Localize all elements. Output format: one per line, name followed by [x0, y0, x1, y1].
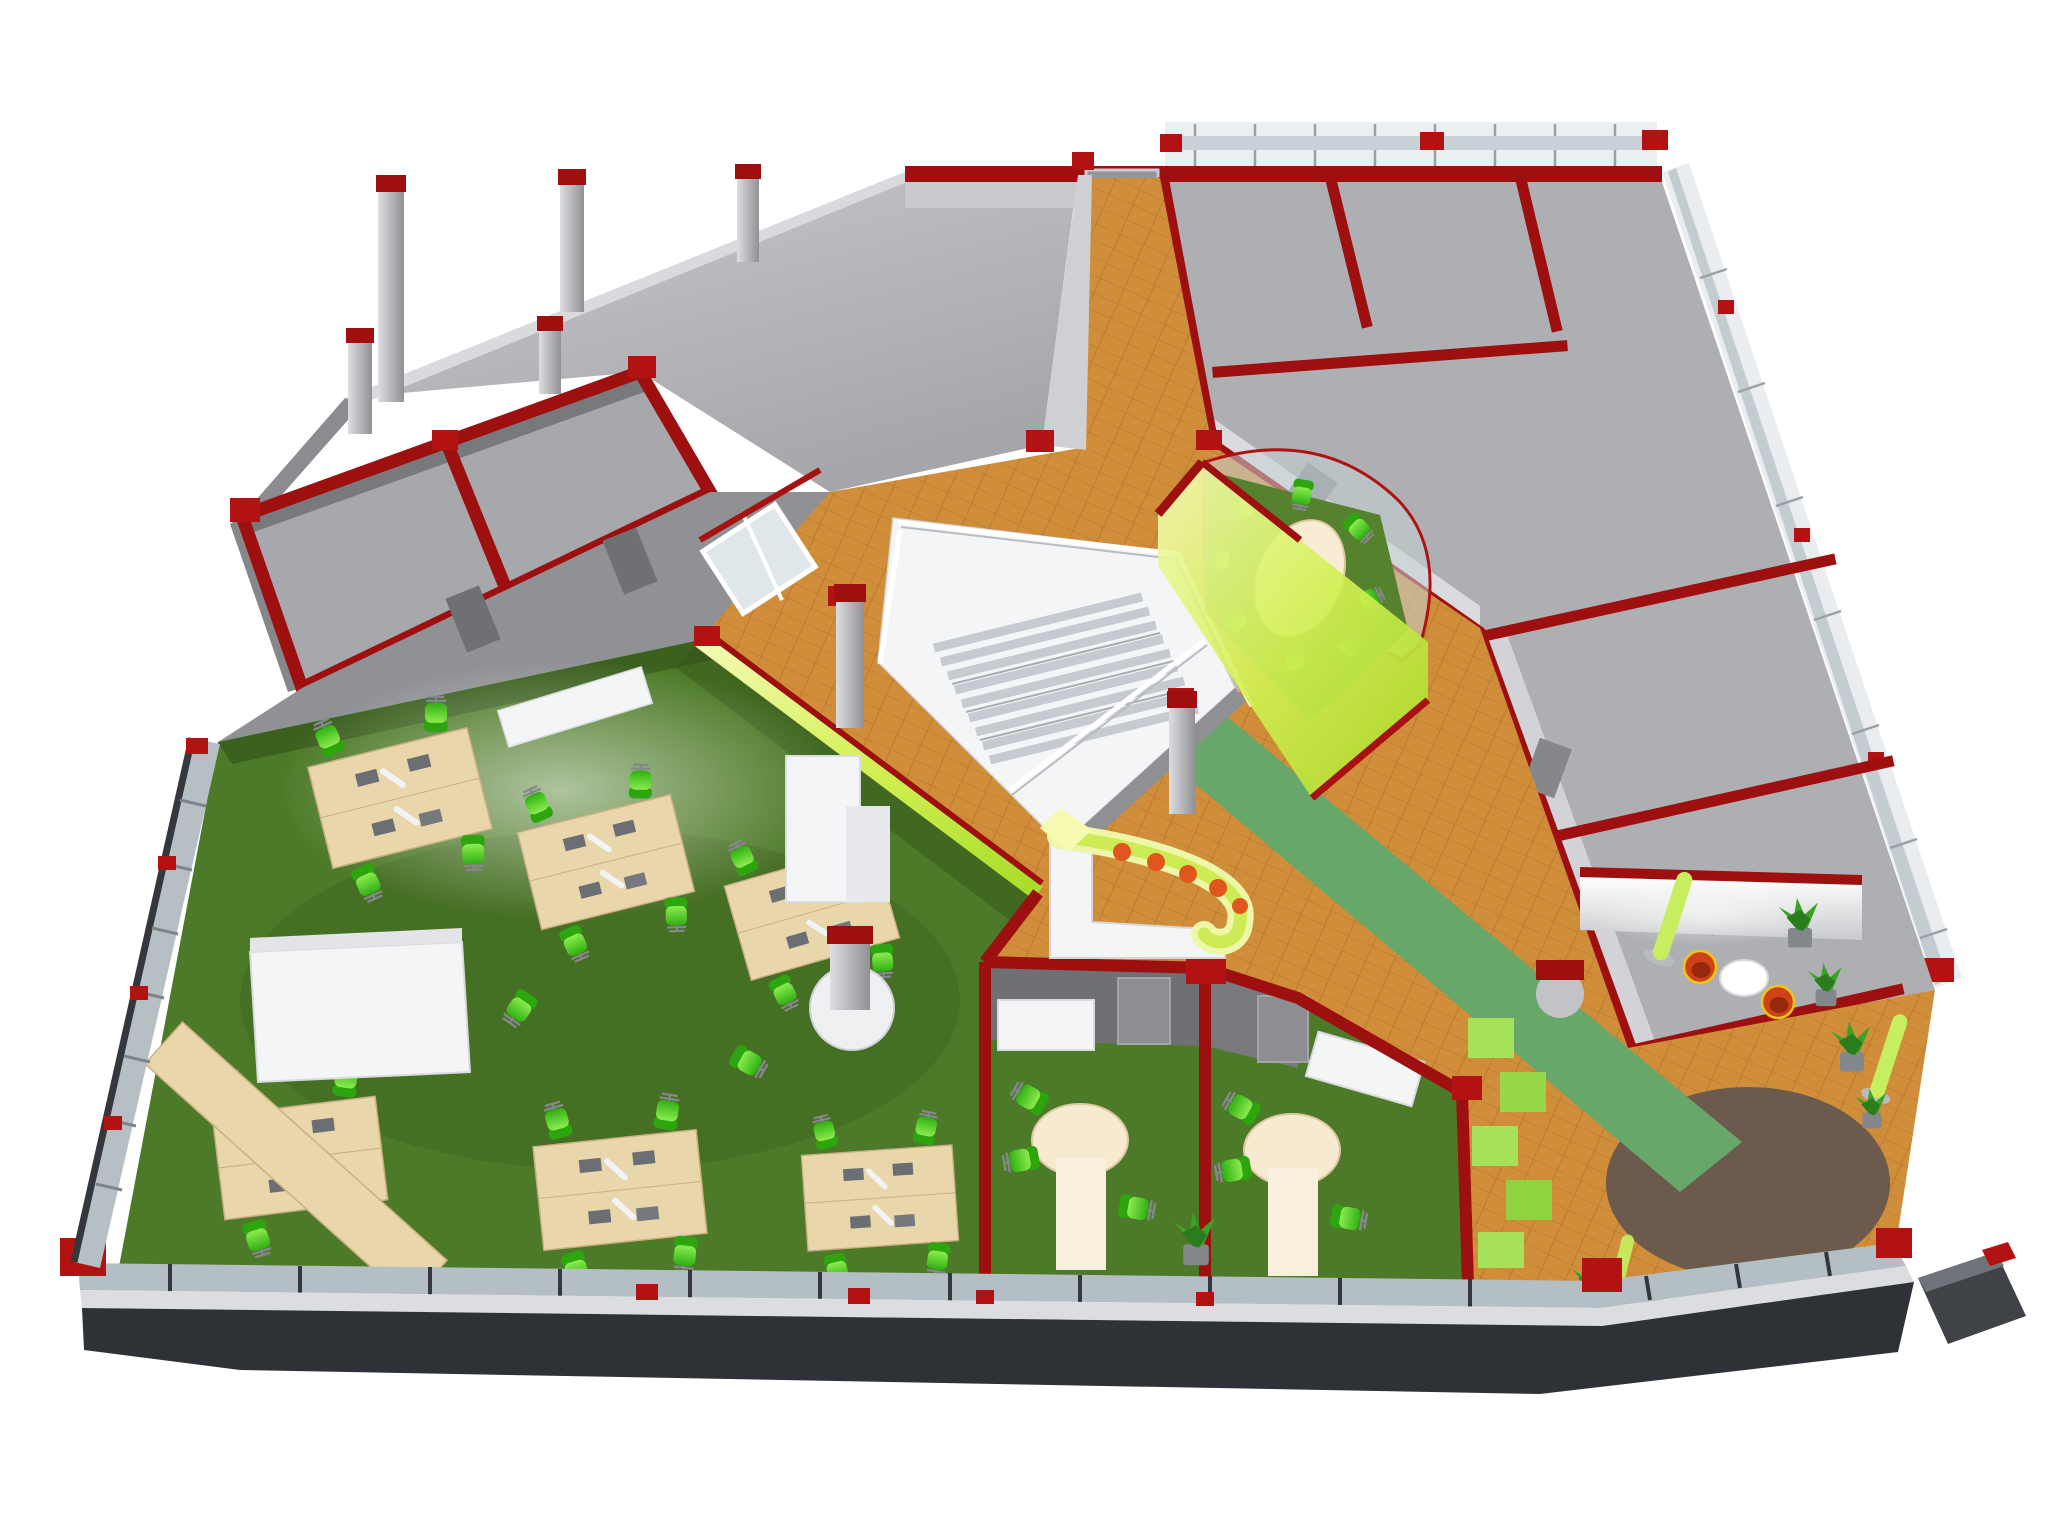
- red-corner-cube: [230, 498, 260, 522]
- column-red-cap: [1536, 960, 1584, 980]
- red-cap: [1642, 130, 1668, 150]
- floor-plan-svg: [0, 0, 2048, 1536]
- red-cap: [1160, 134, 1182, 152]
- column-red-cap: [834, 584, 866, 602]
- column-red-cap: [827, 926, 873, 944]
- detached-wall-block: [1918, 1242, 2026, 1344]
- column-red-cap: [735, 164, 761, 179]
- column: [560, 184, 584, 312]
- tub-chair: [1762, 986, 1794, 1018]
- column-red-cap: [376, 175, 406, 192]
- column: [378, 190, 404, 402]
- column: [737, 178, 759, 262]
- desk-extension: [1268, 1168, 1318, 1276]
- red-accent: [1718, 300, 1734, 314]
- column: [539, 330, 561, 394]
- red-cap: [1420, 132, 1444, 150]
- red-corner-cube: [628, 356, 656, 378]
- top-wall-red-band: [905, 166, 1662, 182]
- sideboard: [998, 1000, 1094, 1050]
- red-cap: [1072, 152, 1094, 170]
- top-window-glass: [1165, 136, 1657, 150]
- column-red-cap: [558, 169, 586, 185]
- column-red-cap: [346, 328, 374, 343]
- column: [348, 342, 372, 434]
- lounge-table: [1720, 960, 1768, 996]
- red-accent: [1794, 528, 1810, 542]
- tub-chair: [1684, 951, 1716, 983]
- column-red-cap: [1167, 691, 1197, 708]
- column-red-cap: [537, 316, 563, 331]
- desk-extension: [1056, 1158, 1106, 1270]
- door: [1118, 978, 1170, 1044]
- floor-plan-render: [0, 0, 2048, 1536]
